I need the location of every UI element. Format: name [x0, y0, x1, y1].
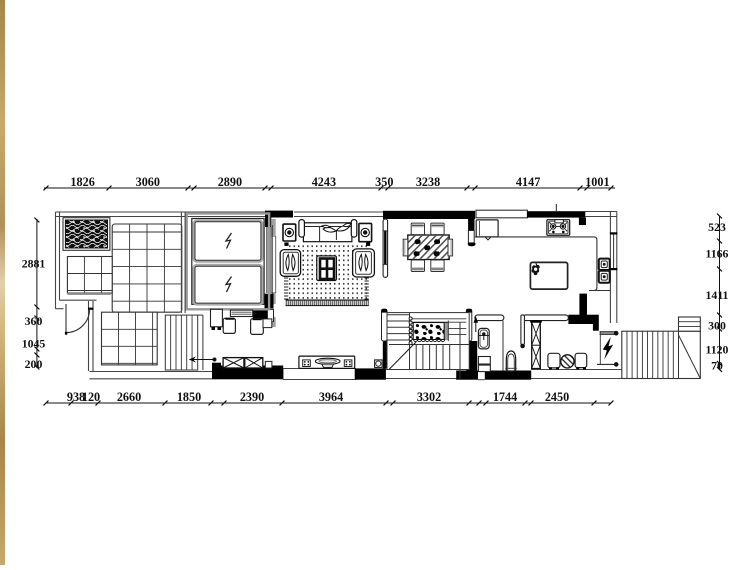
svg-text:2390: 2390: [240, 390, 264, 404]
svg-text:200: 200: [25, 357, 43, 371]
svg-text:3964: 3964: [319, 390, 343, 404]
svg-text:1850: 1850: [177, 390, 201, 404]
svg-text:3238: 3238: [416, 175, 440, 189]
svg-text:1411: 1411: [706, 288, 729, 302]
svg-text:120: 120: [82, 390, 100, 404]
svg-text:350: 350: [375, 175, 393, 189]
svg-text:3060: 3060: [136, 175, 160, 189]
svg-text:1120: 1120: [706, 343, 729, 357]
svg-text:1826: 1826: [70, 175, 94, 189]
svg-text:3302: 3302: [417, 390, 441, 404]
svg-text:4147: 4147: [516, 175, 540, 189]
svg-text:4243: 4243: [312, 175, 336, 189]
svg-text:1744: 1744: [493, 390, 517, 404]
svg-text:1001: 1001: [585, 175, 609, 189]
svg-text:2660: 2660: [117, 390, 141, 404]
svg-text:1045: 1045: [22, 337, 46, 351]
svg-text:2881: 2881: [22, 257, 46, 271]
svg-text:70: 70: [711, 359, 723, 373]
svg-text:1166: 1166: [706, 247, 729, 261]
svg-text:523: 523: [708, 220, 726, 234]
svg-text:360: 360: [25, 314, 43, 328]
svg-text:2450: 2450: [545, 390, 569, 404]
svg-text:2890: 2890: [218, 175, 242, 189]
svg-text:300: 300: [708, 319, 726, 333]
